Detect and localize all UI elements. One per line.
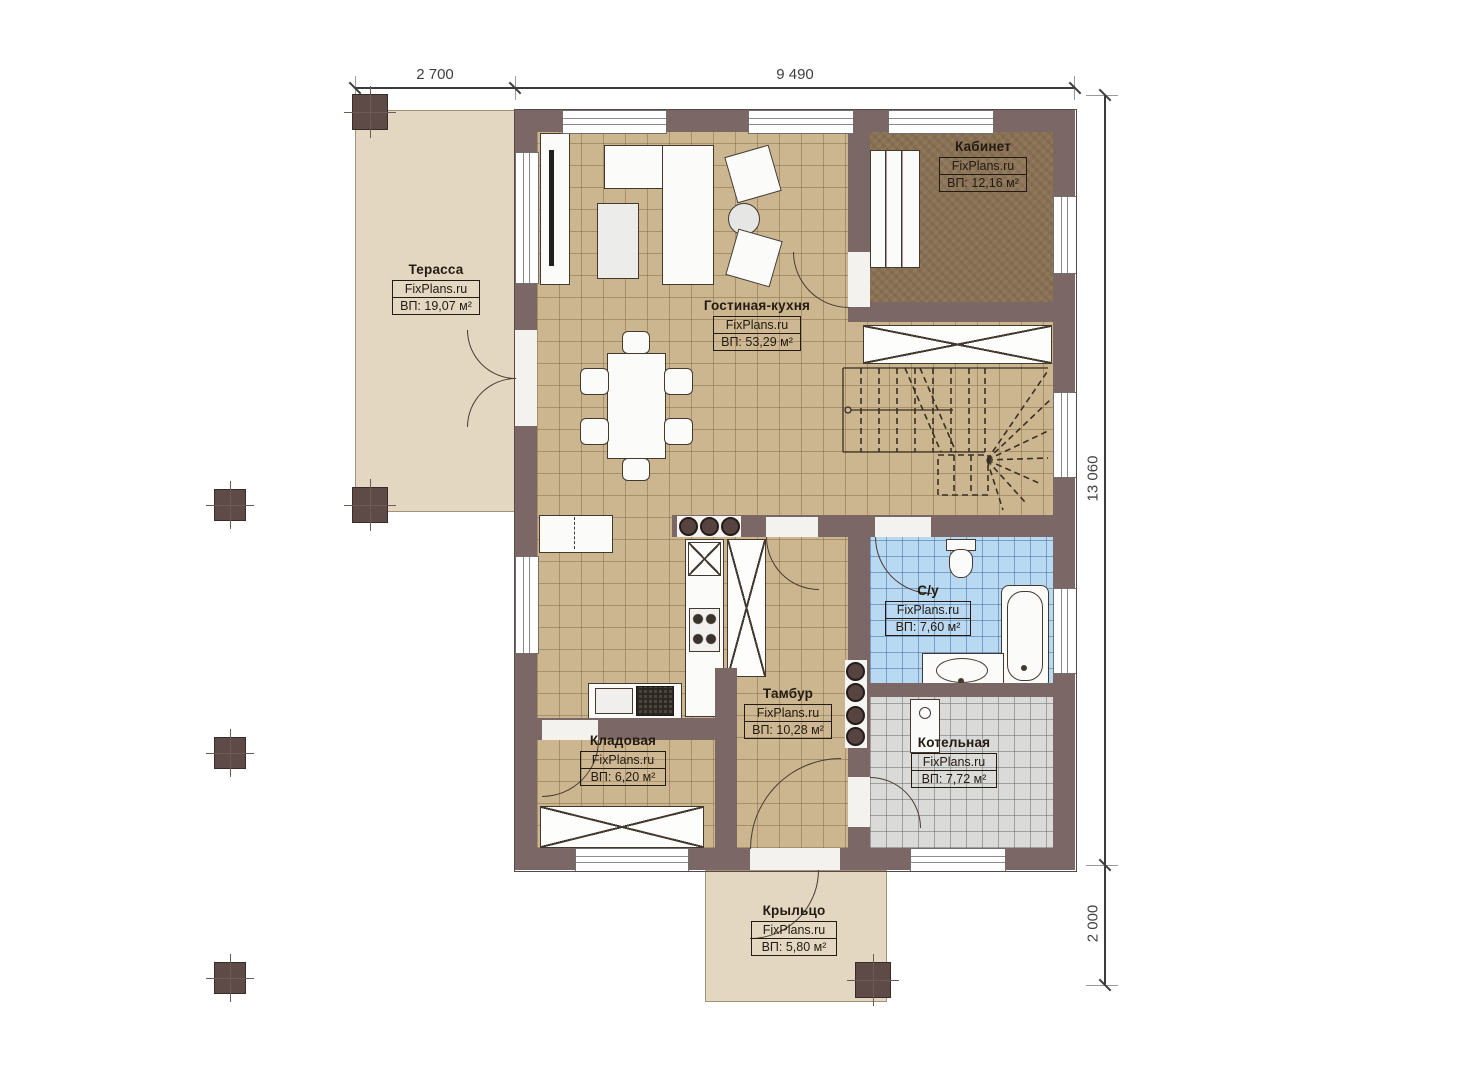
terrace-post bbox=[352, 487, 388, 523]
tv-screen bbox=[549, 150, 554, 266]
staircase bbox=[835, 360, 1055, 518]
room-label-office: Кабинет FixPlans.ru ВП: 12,16 м² bbox=[927, 139, 1039, 192]
room-brand: FixPlans.ru bbox=[745, 705, 831, 722]
tv-stand bbox=[540, 133, 570, 285]
room-name: Тамбур bbox=[735, 686, 841, 701]
window bbox=[748, 110, 854, 134]
room-brand: FixPlans.ru bbox=[393, 281, 479, 298]
pipe bbox=[679, 517, 698, 536]
window bbox=[1053, 588, 1077, 674]
window bbox=[910, 848, 1006, 872]
sofa-right-arm bbox=[662, 145, 714, 285]
pipe-riser-niche bbox=[845, 660, 867, 748]
dim-label-13060: 13 060 bbox=[1085, 434, 1102, 524]
office-wardrobe bbox=[870, 150, 920, 268]
tambour-door-opening bbox=[766, 517, 818, 537]
dim-label-2000: 2 000 bbox=[1085, 879, 1102, 969]
toilet-bowl bbox=[949, 549, 973, 578]
terrace-door-opening bbox=[515, 330, 537, 426]
site-post bbox=[214, 737, 246, 769]
wall-bath-boiler bbox=[870, 683, 1053, 697]
room-brand: FixPlans.ru bbox=[940, 158, 1026, 175]
room-area: ВП: 10,28 м² bbox=[745, 722, 831, 738]
dim-ext bbox=[1086, 865, 1118, 866]
room-brand: FixPlans.ru bbox=[912, 754, 996, 771]
bathroom-door-opening bbox=[875, 517, 931, 537]
wall-storage-right bbox=[715, 718, 737, 848]
boiler-dial bbox=[919, 707, 931, 719]
room-name: С/у bbox=[876, 583, 980, 598]
room-brand: FixPlans.ru bbox=[581, 752, 665, 769]
entrance-door-opening bbox=[750, 848, 840, 870]
room-label-storage: Кладовая FixPlans.ru ВП: 6,20 м² bbox=[570, 733, 676, 786]
dim-label-9490: 9 490 bbox=[750, 66, 840, 83]
kitchen-sink bbox=[595, 688, 633, 714]
room-name: Котельная bbox=[898, 735, 1010, 750]
bathtub-drain bbox=[1021, 665, 1027, 671]
room-name: Кладовая bbox=[570, 733, 676, 748]
dim-line-right bbox=[1104, 95, 1106, 985]
coffee-table bbox=[597, 203, 639, 279]
window bbox=[515, 556, 539, 654]
dining-chair bbox=[580, 418, 609, 445]
room-brand: FixPlans.ru bbox=[886, 602, 970, 619]
site-post bbox=[214, 962, 246, 994]
pipe bbox=[721, 517, 740, 536]
wall-stub bbox=[715, 668, 737, 718]
pipe bbox=[846, 727, 865, 746]
room-brand: FixPlans.ru bbox=[752, 922, 836, 939]
room-label-bathroom: С/у FixPlans.ru ВП: 7,60 м² bbox=[876, 583, 980, 636]
room-area: ВП: 5,80 м² bbox=[752, 939, 836, 955]
dim-label-2700: 2 700 bbox=[390, 66, 480, 83]
dim-ext bbox=[1086, 985, 1118, 986]
room-area: ВП: 7,72 м² bbox=[912, 771, 996, 787]
dining-chair bbox=[664, 368, 693, 395]
terrace-post bbox=[352, 94, 388, 130]
site-post bbox=[214, 489, 246, 521]
pipe bbox=[846, 706, 865, 725]
dining-chair bbox=[622, 458, 650, 481]
room-name: Терасса bbox=[380, 262, 492, 277]
room-label-terrace: Терасса FixPlans.ru ВП: 19,07 м² bbox=[380, 262, 492, 315]
dish-rack bbox=[636, 686, 674, 716]
dining-chair bbox=[580, 368, 609, 395]
porch-post bbox=[855, 962, 891, 998]
room-name: Крыльцо bbox=[740, 903, 848, 918]
room-area: ВП: 53,29 м² bbox=[714, 334, 800, 350]
pipe bbox=[846, 662, 865, 681]
storage-shelving bbox=[540, 806, 704, 848]
dim-line-top bbox=[355, 87, 1075, 89]
window bbox=[515, 152, 539, 284]
hall-wardrobe bbox=[863, 325, 1052, 364]
dim-ext bbox=[1086, 95, 1118, 96]
boiler-door-opening bbox=[848, 777, 870, 827]
cooktop bbox=[688, 542, 721, 576]
room-label-boiler: Котельная FixPlans.ru ВП: 7,72 м² bbox=[898, 735, 1010, 788]
floor-plan: 2 700 9 490 13 060 2 000 Терасса FixPlan… bbox=[0, 0, 1473, 1080]
window bbox=[575, 848, 689, 872]
fridge-counter bbox=[539, 515, 613, 553]
window bbox=[888, 110, 994, 134]
dining-table bbox=[607, 353, 666, 459]
room-area: ВП: 7,60 м² bbox=[886, 619, 970, 635]
room-area: ВП: 12,16 м² bbox=[940, 175, 1026, 191]
fridge-counter-divider bbox=[574, 517, 575, 549]
window bbox=[1053, 392, 1077, 478]
pipe bbox=[846, 683, 865, 702]
pipe-riser-niche bbox=[677, 516, 741, 537]
wall-office-bottom bbox=[848, 302, 1053, 322]
room-label-tambour: Тамбур FixPlans.ru ВП: 10,28 м² bbox=[735, 686, 841, 739]
pipe bbox=[700, 517, 719, 536]
tambour-wardrobe bbox=[727, 539, 766, 677]
room-label-porch: Крыльцо FixPlans.ru ВП: 5,80 м² bbox=[740, 903, 848, 956]
office-door-opening bbox=[848, 252, 870, 307]
dining-chair bbox=[622, 331, 650, 354]
room-label-living-kitchen: Гостиная-кухня FixPlans.ru ВП: 53,29 м² bbox=[677, 298, 837, 351]
room-name: Гостиная-кухня bbox=[677, 298, 837, 313]
dining-chair bbox=[664, 418, 693, 445]
room-name: Кабинет bbox=[927, 139, 1039, 154]
window bbox=[1053, 196, 1077, 274]
room-area: ВП: 19,07 м² bbox=[393, 298, 479, 314]
window bbox=[562, 110, 667, 134]
oven-burners bbox=[689, 608, 720, 652]
room-area: ВП: 6,20 м² bbox=[581, 769, 665, 785]
room-brand: FixPlans.ru bbox=[714, 317, 800, 334]
